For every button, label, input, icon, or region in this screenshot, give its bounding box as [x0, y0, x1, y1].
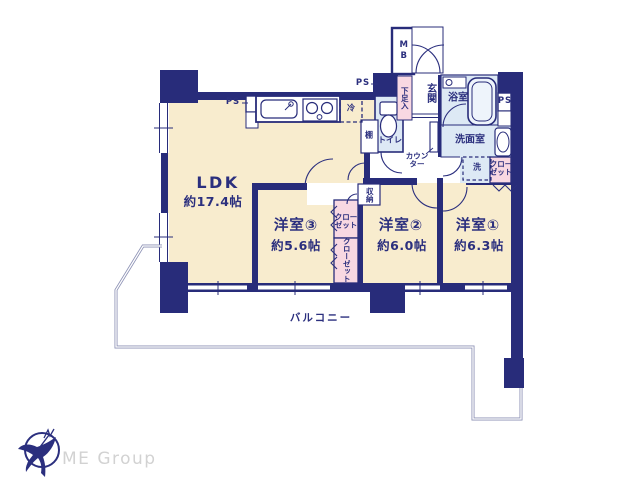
washroom-label: 洗面室 — [455, 134, 485, 145]
wall-right — [511, 73, 523, 358]
hallway-floor-2 — [441, 155, 462, 183]
closet-a-label: クローゼット — [335, 214, 358, 231]
mb-label: MB — [398, 40, 408, 62]
toilet-label: トイレ — [378, 137, 402, 146]
bath-label: 浴室 — [448, 92, 468, 103]
floor-plan-page: LDK 約17.4帖 洋室③ 約5.6帖 洋室② 約6.0帖 洋室① 約6.3帖… — [0, 0, 640, 480]
wall-ldk-hall — [364, 152, 370, 183]
fridge-label: 冷 — [347, 105, 355, 114]
balcony-label: バルコニー — [290, 313, 352, 325]
storage-label: 収納 — [365, 188, 373, 203]
ldk-label: LDK — [196, 174, 239, 192]
counter-box — [430, 122, 438, 152]
bird-icon — [18, 437, 56, 477]
pillar-top-left — [160, 70, 198, 103]
ps-label-1: PS — [226, 98, 240, 108]
pillar-bottom-left — [160, 262, 188, 313]
wall-closet-room2 — [358, 197, 363, 283]
ldk-size-label: 約17.4帖 — [184, 195, 243, 209]
wall-room3-top — [252, 183, 307, 190]
toilet-tank — [380, 102, 397, 115]
room3-label: 洋室③ — [274, 218, 318, 234]
entrance-label: 玄関 — [424, 83, 435, 103]
room3-size-label: 約5.6帖 — [271, 239, 321, 253]
duct-right-2 — [498, 111, 511, 126]
pillar-bottom-mid — [370, 283, 405, 313]
wall-ldk-room3 — [252, 185, 258, 292]
closet-b-label: クローゼット — [342, 238, 350, 283]
corner-top-right — [498, 72, 523, 93]
room2-size-label: 約6.0帖 — [377, 239, 427, 253]
counter-label: カウンター — [406, 153, 429, 170]
room1-size-label: 約6.3帖 — [454, 239, 504, 253]
ps-label-2: PS — [356, 79, 370, 89]
ps-label-3: PS — [498, 97, 512, 107]
room2-label: 洋室② — [379, 218, 423, 234]
pillar-bottom-right — [504, 358, 524, 388]
company-name: ME Group — [62, 450, 157, 469]
wall-room2-room1 — [437, 178, 443, 285]
logo-mark — [18, 429, 59, 477]
shoe-box-label: 下足入 — [400, 87, 408, 110]
room1-label: 洋室① — [456, 218, 500, 234]
shelf-label: 棚 — [365, 132, 373, 141]
toilet-bowl — [381, 115, 397, 137]
washer-label: 洗 — [473, 164, 481, 173]
closet-room1-label: クローゼット — [490, 161, 513, 178]
